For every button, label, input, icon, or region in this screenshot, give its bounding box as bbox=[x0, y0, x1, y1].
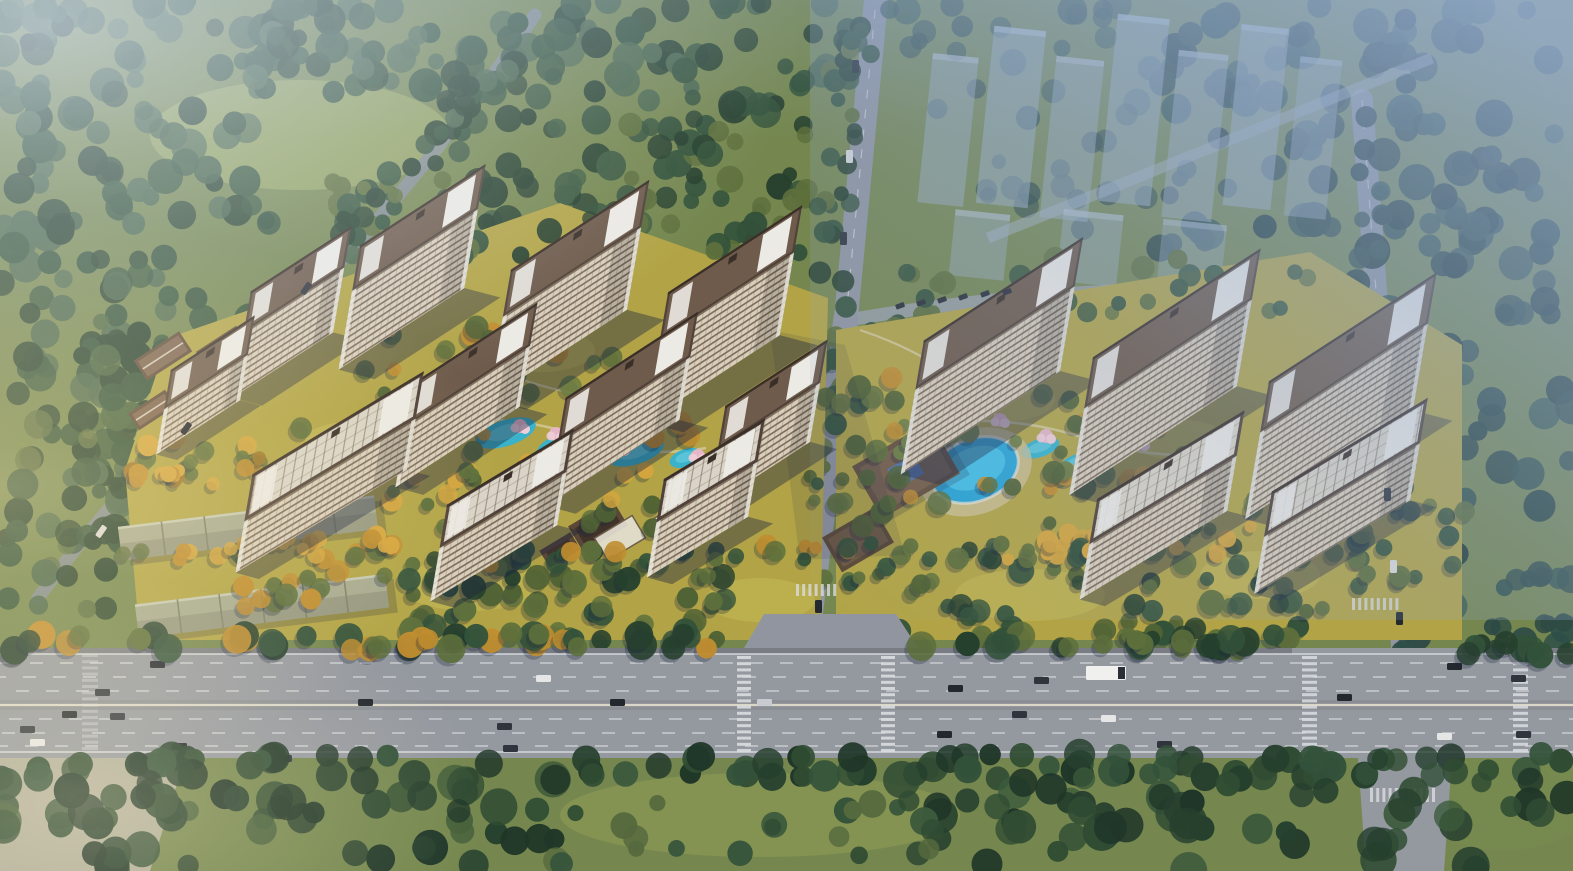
atmosphere-overlays bbox=[0, 0, 1573, 871]
warm-light-corner bbox=[0, 0, 1573, 871]
rendering-canvas bbox=[0, 0, 1573, 871]
aerial-site-rendering bbox=[0, 0, 1573, 871]
